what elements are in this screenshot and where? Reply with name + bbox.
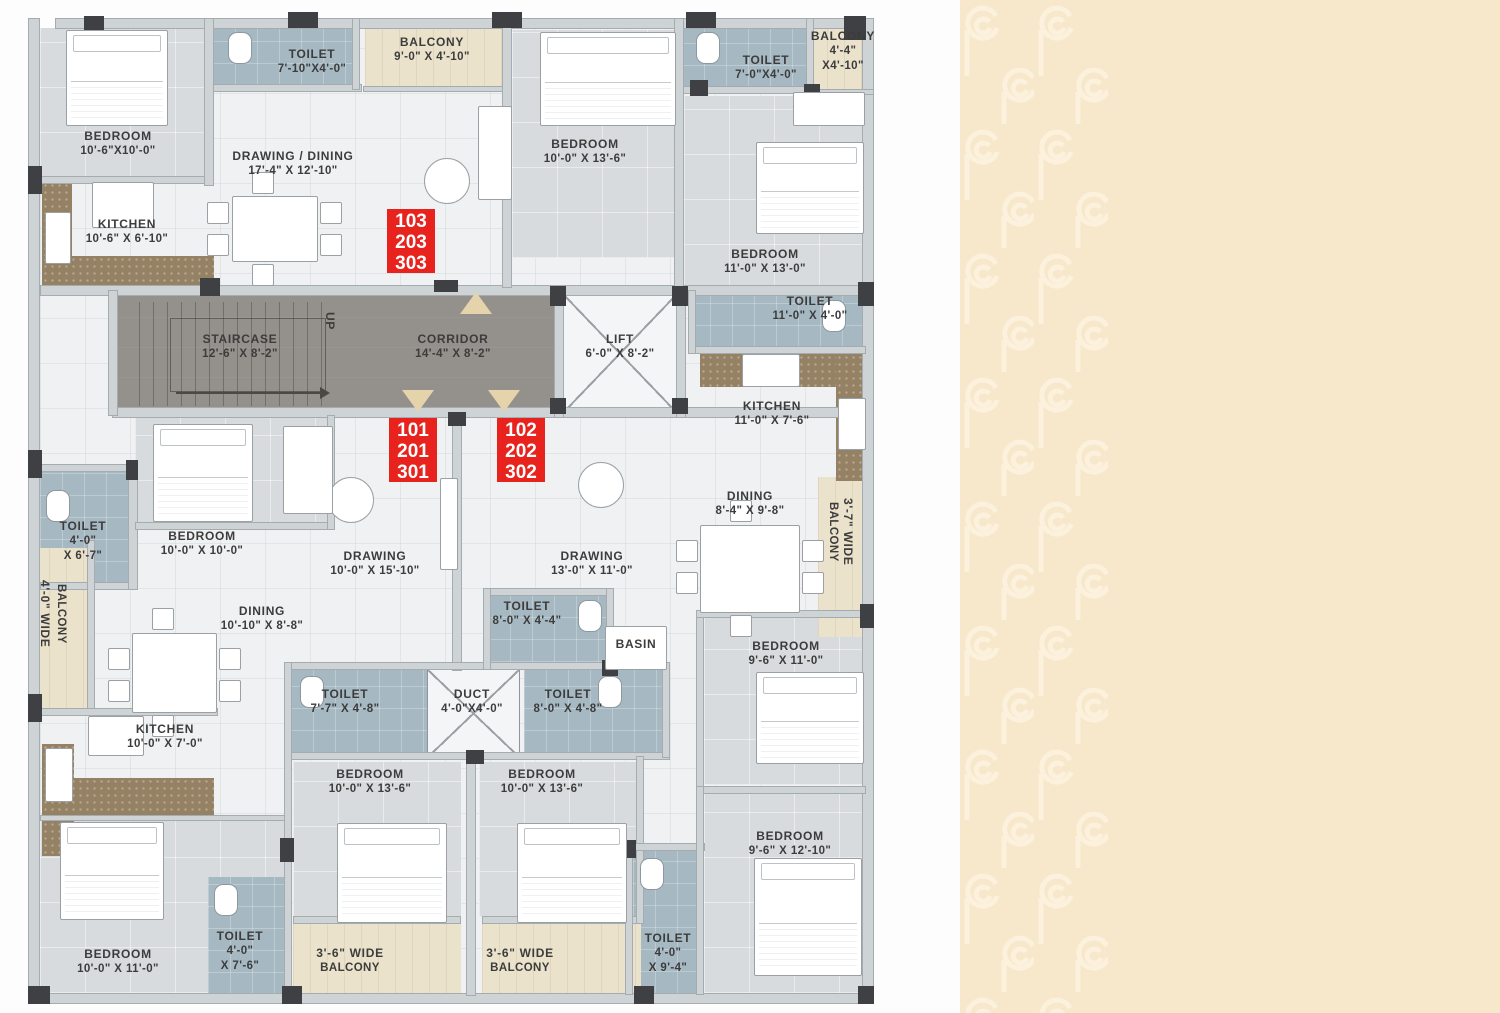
bed-bottom-mid-1 [337,823,447,923]
wall-toilet-tl-bottom [212,84,362,92]
room-label-name: DINING [675,488,825,504]
round-table-101 [328,477,374,523]
room-label-drawing-dining-3: DRAWING / DINING17'-4" X 12'-10" [183,148,403,179]
flat-number-line: 103 [387,211,435,232]
dining-table-103 [232,196,318,262]
wall-pillar-3 [686,12,716,28]
entry-arrow-up [460,292,492,314]
room-label-name: TOILET [730,293,890,309]
wall-bedroom-bm2-right [636,756,644,924]
chair-18 [730,615,752,637]
sidebar: 1st, 2nd, 3rd Floor Plan ENSW Flat no.Ty… [960,0,1500,1013]
wall-pillar-5 [28,166,42,194]
room-label-name: BALCONY [793,28,893,44]
room-label-drawing-19: DRAWING13'-0" X 11'-0" [502,548,682,579]
room-label-dims: 10'-10" X 8'-8" [172,619,352,634]
room-label-name: UP [322,312,338,330]
flat-number-line: 303 [387,253,435,274]
flat-number-line: 203 [387,232,435,253]
bed-right-upper [756,672,864,764]
bed-bottom-left [60,822,164,920]
wall-bedroom-r1-left [696,610,704,794]
room-label-toilet-35: TOILET4'-0"X 9'-4" [618,930,718,976]
room-label-dims: 10'-0" X 15'-10" [285,564,465,579]
room-label-dims: 10'-0" X 7'-0" [85,737,245,752]
room-label-staircase-9: STAIRCASE12'-6" X 8'-2" [160,331,320,362]
room-label-dims: 4'-4" [793,44,893,59]
room-label-dims: BALCONY [285,961,415,976]
room-label-name: KITCHEN [692,398,852,414]
room-label-dims: BALCONY [53,580,68,648]
room-label-dims: 9'-6" X 12'-10" [705,844,875,859]
room-label-name: 4'-0" WIDE [37,580,53,648]
room-label-name: BALCONY [357,34,507,50]
room-label-dims: 4'-0" [33,534,133,549]
chair-7 [108,648,130,670]
room-label-name: BEDROOM [457,766,627,782]
room-label-name: BEDROOM [43,128,193,144]
chair-1 [207,202,229,224]
wall-pillar-16 [860,604,874,628]
room-label-name: KITCHEN [47,216,207,232]
room-label-dims: 8'-0" X 4'-8" [498,702,638,717]
round-table-102 [578,462,624,508]
room-label-name: DRAWING [285,548,465,564]
chair-2 [207,234,229,256]
room-label-dims: BALCONY [455,961,585,976]
wall-pillar-18 [282,986,302,1004]
room-label-balcony-7: BALCONY4'-4"X4'-10" [793,28,893,74]
chair-9 [219,648,241,670]
chair-6 [252,264,274,286]
flat-number-marker-101: 101201301 [389,418,437,482]
room-label-name: BEDROOM [685,246,845,262]
wall-pillar-9 [200,278,220,296]
room-label-name: 3'-7" WIDE [840,498,856,566]
wall-pillar-19 [634,986,654,1004]
room-label-dims: 10'-6"X10'-0" [43,144,193,159]
room-label-dims: X 9'-4" [618,961,718,976]
room-label-dims: 9'-6" X 11'-0" [706,654,866,669]
room-label-3-6-wide-33: 3'-6" WIDEBALCONY [285,945,415,976]
room-label-balcony-2: BALCONY9'-0" X 4'-10" [357,34,507,65]
room-label-dining-14: DINING8'-4" X 9'-8" [675,488,825,519]
wall-toilet-mr-bottom [688,346,866,354]
room-label-dims: 10'-0" X 11'-0" [38,962,198,977]
room-label-name: TOILET [498,686,638,702]
bed-mid-left [153,424,253,522]
room-label-dims: X 7'-6" [190,959,290,974]
wall-pillar-20 [858,986,874,1004]
wall-balcony-l-right [87,540,95,716]
room-label-toilet-27: TOILET8'-0" X 4'-8" [498,686,638,717]
round-table-103 [424,158,470,204]
room-label-name: TOILET [275,686,415,702]
room-label-dims: 4'-0" [190,944,290,959]
room-label-name: BEDROOM [38,946,198,962]
room-label-dining-20: DINING10'-10" X 8'-8" [172,603,352,634]
ornament-pattern [960,0,1110,1013]
room-label-toilet-25: TOILET7'-7" X 4'-8" [275,686,415,717]
room-label-dims: 10'-0" X 13'-6" [505,152,665,167]
room-label-dims: X4'-10" [793,59,893,74]
room-label-bedroom-5: BEDROOM10'-0" X 13'-6" [505,136,665,167]
wall-pillar-23 [126,460,138,480]
bed-bottom-mid-2 [517,823,627,923]
wall-pillar-8 [28,986,50,1004]
entry-arrow-down-2 [488,390,520,412]
toilet-fixture-7 [214,884,238,916]
flat-number-marker-102: 102202302 [497,418,545,482]
room-label-name: TOILET [618,930,718,946]
dining-table-102 [700,525,800,613]
room-label-dims: 12'-6" X 8'-2" [160,347,320,362]
bed-right-lower [754,858,862,976]
flat-number-line: 102 [497,420,545,441]
room-label-lift-11: LIFT6'-0" X 8'-2" [555,331,685,362]
room-label-4-0-wide-21: 4'-0" WIDEBALCONY [37,580,68,648]
room-label-bedroom-17: BEDROOM10'-0" X 10'-0" [122,528,282,559]
bed-top-mid [540,32,676,126]
room-label-name: BASIN [596,636,676,652]
wall-pillar-24 [448,412,466,426]
wall-bedroom-r-div [696,786,866,794]
wall-pillar-1 [288,12,318,28]
stove-r [742,354,800,387]
room-label-name: KITCHEN [85,721,245,737]
room-label-dims: 11'-0" X 13'-0" [685,262,845,277]
room-label-basin-30: BASIN [596,636,676,652]
flat-number-line: 301 [389,462,437,483]
wall-outer-bottom [28,993,874,1004]
wall-toilet-br-top [625,843,705,851]
room-label-dims: 10'-0" X 13'-6" [457,782,627,797]
room-label-dims: BALCONY [825,498,840,566]
room-label-name: DINING [172,603,352,619]
flat-number-line: 101 [389,420,437,441]
room-label-name: BEDROOM [705,828,875,844]
room-label-3-7-wide-15: 3'-7" WIDEBALCONY [825,498,856,566]
wall-stair-left [108,290,118,416]
room-label-name: TOILET [452,598,602,614]
chair-10 [219,680,241,702]
wall-toilet-mr-left [688,290,696,354]
dining-table-101 [132,633,217,713]
wall-pillar-13 [672,286,688,306]
chair-16 [802,572,824,594]
room-label-name: TOILET [33,518,133,534]
staircase-arrow-head [320,387,330,399]
wall-kitchen-bl-bottom [40,815,286,821]
room-label-bedroom-23: BEDROOM10'-0" X 11'-0" [38,946,198,977]
sofa-101 [283,426,333,514]
room-label-drawing-18: DRAWING10'-0" X 15'-10" [285,548,465,579]
room-label-name: 3'-6" WIDE [285,945,415,961]
room-label-corridor-10: CORRIDOR14'-4" X 8'-2" [373,331,533,362]
room-label-dims: 10'-0" X 10'-0" [122,544,282,559]
bed-top-right [756,142,864,234]
room-label-kitchen-4: KITCHEN10'-6" X 6'-10" [47,216,207,247]
wall-balcony-tl-bottom [363,86,506,92]
room-label-name: BEDROOM [285,766,455,782]
room-label-up-37: UP [322,312,338,330]
room-label-toilet-24: TOILET4'-0"X 7'-6" [190,928,290,974]
floor-plan: BEDROOM10'-6"X10'-0"TOILET7'-10"X4'-0"BA… [0,0,960,1013]
chair-15 [802,540,824,562]
flat-number-line: 202 [497,441,545,462]
wall-toilet-m-top [483,588,613,596]
wall-pillar-15 [672,398,688,414]
room-label-dims: 11'-0" X 4'-0" [730,309,890,324]
room-label-dims: 11'-0" X 7'-6" [692,414,852,429]
room-label-name: DRAWING / DINING [183,148,403,164]
wall-pillar-10 [434,280,458,292]
room-label-name: STAIRCASE [160,331,320,347]
room-label-dims: 7'-7" X 4'-8" [275,702,415,717]
flat-number-line: 201 [389,441,437,462]
chair-4 [320,234,342,256]
room-label-name: BEDROOM [505,136,665,152]
room-label-name: DRAWING [502,548,682,564]
room-label-dims: 10'-0" X 13'-6" [285,782,455,797]
room-label-kitchen-13: KITCHEN11'-0" X 7'-6" [692,398,852,429]
room-label-toilet-31: TOILET8'-0" X 4'-4" [452,598,602,629]
room-label-dims: 14'-4" X 8'-2" [373,347,533,362]
flat-number-line: 302 [497,462,545,483]
chair-3 [320,202,342,224]
room-label-name: BEDROOM [706,638,866,654]
room-label-dims: 9'-0" X 4'-10" [357,50,507,65]
sofa-102 [793,92,865,126]
room-label-bedroom-28: BEDROOM10'-0" X 13'-6" [285,766,455,797]
bed-top-left [66,30,168,126]
room-label-dims: 17'-4" X 12'-10" [183,164,403,179]
room-label-dims: X 6'-7" [33,549,133,564]
room-label-kitchen-22: KITCHEN10'-0" X 7'-0" [85,721,245,752]
room-label-bedroom-8: BEDROOM11'-0" X 13'-0" [685,246,845,277]
room-label-name: TOILET [190,928,290,944]
room-label-toilet-16: TOILET4'-0"X 6'-7" [33,518,133,564]
entry-arrow-down-1 [402,390,434,412]
room-label-toilet-12: TOILET11'-0" X 4'-0" [730,293,890,324]
room-label-name: BEDROOM [122,528,282,544]
room-label-dims: 8'-0" X 4'-4" [452,614,602,629]
room-label-dims: 6'-0" X 8'-2" [555,347,685,362]
wall-flat102-right-a [662,662,670,758]
toilet-fixture-8 [640,858,664,890]
wall-outer-top [55,18,873,29]
wall-pillar-17 [280,838,294,862]
wall-pillar-2 [492,12,522,28]
room-label-3-6-wide-34: 3'-6" WIDEBALCONY [455,945,585,976]
room-label-dims: 13'-0" X 11'-0" [502,564,682,579]
room-label-name: 3'-6" WIDE [455,945,585,961]
room-label-bedroom-36: BEDROOM9'-6" X 12'-10" [705,828,875,859]
room-label-name: CORRIDOR [373,331,533,347]
wall-pillar-6 [28,450,42,478]
wall-pillar-26 [466,750,484,764]
room-label-bedroom-29: BEDROOM10'-0" X 13'-6" [457,766,627,797]
room-label-name: LIFT [555,331,685,347]
wall-toilet-ml-top [40,464,136,472]
wall-pillar-12 [550,286,566,306]
staircase-arrow-line [176,392,322,394]
room-label-bedroom-32: BEDROOM9'-6" X 11'-0" [706,638,866,669]
room-label-dims: 10'-6" X 6'-10" [47,232,207,247]
sink-bl [45,748,73,802]
chair-11 [152,608,174,630]
room-label-dims: 8'-4" X 9'-8" [675,504,825,519]
chair-8 [108,680,130,702]
flat-number-marker-103: 103203303 [387,209,435,273]
floor-plan-brochure: BEDROOM10'-6"X10'-0"TOILET7'-10"X4'-0"BA… [0,0,1500,1013]
room-label-dims: 4'-0" [618,946,718,961]
wall-pillar-14 [550,398,566,414]
wall-pillar-7 [28,694,42,722]
room-label-bedroom-0: BEDROOM10'-6"X10'-0" [43,128,193,159]
